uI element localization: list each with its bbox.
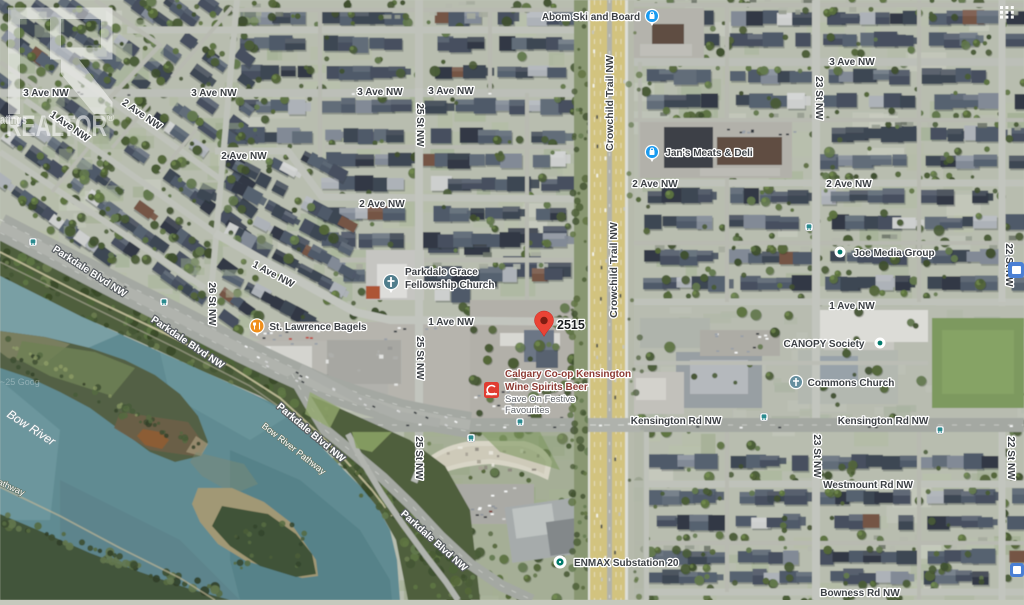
svg-text:Joe Media Group: Joe Media Group <box>853 248 934 259</box>
svg-text:Parkdale Grace: Parkdale Grace <box>405 267 478 278</box>
svg-text:Crowchild Trail NW: Crowchild Trail NW <box>608 222 620 318</box>
svg-text:Abom Ski and Board: Abom Ski and Board <box>542 12 640 23</box>
svg-text:3 Ave NW: 3 Ave NW <box>428 86 474 97</box>
svg-text:Calgary Co-op Kensington: Calgary Co-op Kensington <box>505 369 631 380</box>
svg-text:Wine Spirits Beer: Wine Spirits Beer <box>505 382 588 393</box>
svg-text:2 Ave NW: 2 Ave NW <box>826 179 872 190</box>
svg-text:Bowness Rd NW: Bowness Rd NW <box>820 588 900 599</box>
svg-text:St. Lawrence Bagels: St. Lawrence Bagels <box>269 322 367 333</box>
svg-text:26 St NW: 26 St NW <box>206 282 217 326</box>
svg-text:23 St NW: 23 St NW <box>811 434 822 478</box>
svg-text:3 Ave NW: 3 Ave NW <box>23 88 69 99</box>
svg-text:Kensington Rd NW: Kensington Rd NW <box>631 416 722 427</box>
svg-text:®: ® <box>107 113 115 124</box>
svg-text:25 St NW: 25 St NW <box>414 336 425 380</box>
svg-text:atings: atings <box>0 112 27 127</box>
svg-text:~25 Goog: ~25 Goog <box>0 377 40 387</box>
svg-text:CANOPY Society: CANOPY Society <box>784 339 865 350</box>
svg-text:3 Ave NW: 3 Ave NW <box>357 87 403 98</box>
svg-text:Commons Church: Commons Church <box>808 378 895 389</box>
svg-text:Jan's Meats & Deli: Jan's Meats & Deli <box>665 148 753 159</box>
svg-text:Favourites: Favourites <box>505 405 550 416</box>
svg-text:Crowchild Trail NW: Crowchild Trail NW <box>604 55 616 151</box>
svg-text:2515: 2515 <box>557 318 585 332</box>
svg-text:1 Ave NW: 1 Ave NW <box>829 301 875 312</box>
svg-text:25 St NW: 25 St NW <box>414 103 425 147</box>
svg-text:2 Ave NW: 2 Ave NW <box>359 199 405 210</box>
svg-text:3 Ave NW: 3 Ave NW <box>829 57 875 68</box>
svg-text:2 Ave NW: 2 Ave NW <box>632 179 678 190</box>
svg-text:25 St NW: 25 St NW <box>413 436 424 480</box>
svg-text:ENMAX Substation 20: ENMAX Substation 20 <box>574 558 679 569</box>
svg-text:Kensington Rd NW: Kensington Rd NW <box>838 416 929 427</box>
svg-text:22 St NW: 22 St NW <box>1005 436 1016 480</box>
svg-text:3 Ave NW: 3 Ave NW <box>191 88 237 99</box>
svg-text:Fellowship Church: Fellowship Church <box>405 280 494 291</box>
svg-text:23 St NW: 23 St NW <box>813 76 824 120</box>
svg-text:Westmount Rd NW: Westmount Rd NW <box>823 480 913 491</box>
svg-text:1 Ave NW: 1 Ave NW <box>428 317 474 328</box>
svg-text:Save On Festive: Save On Festive <box>505 394 575 405</box>
svg-text:2 Ave NW: 2 Ave NW <box>221 151 267 162</box>
